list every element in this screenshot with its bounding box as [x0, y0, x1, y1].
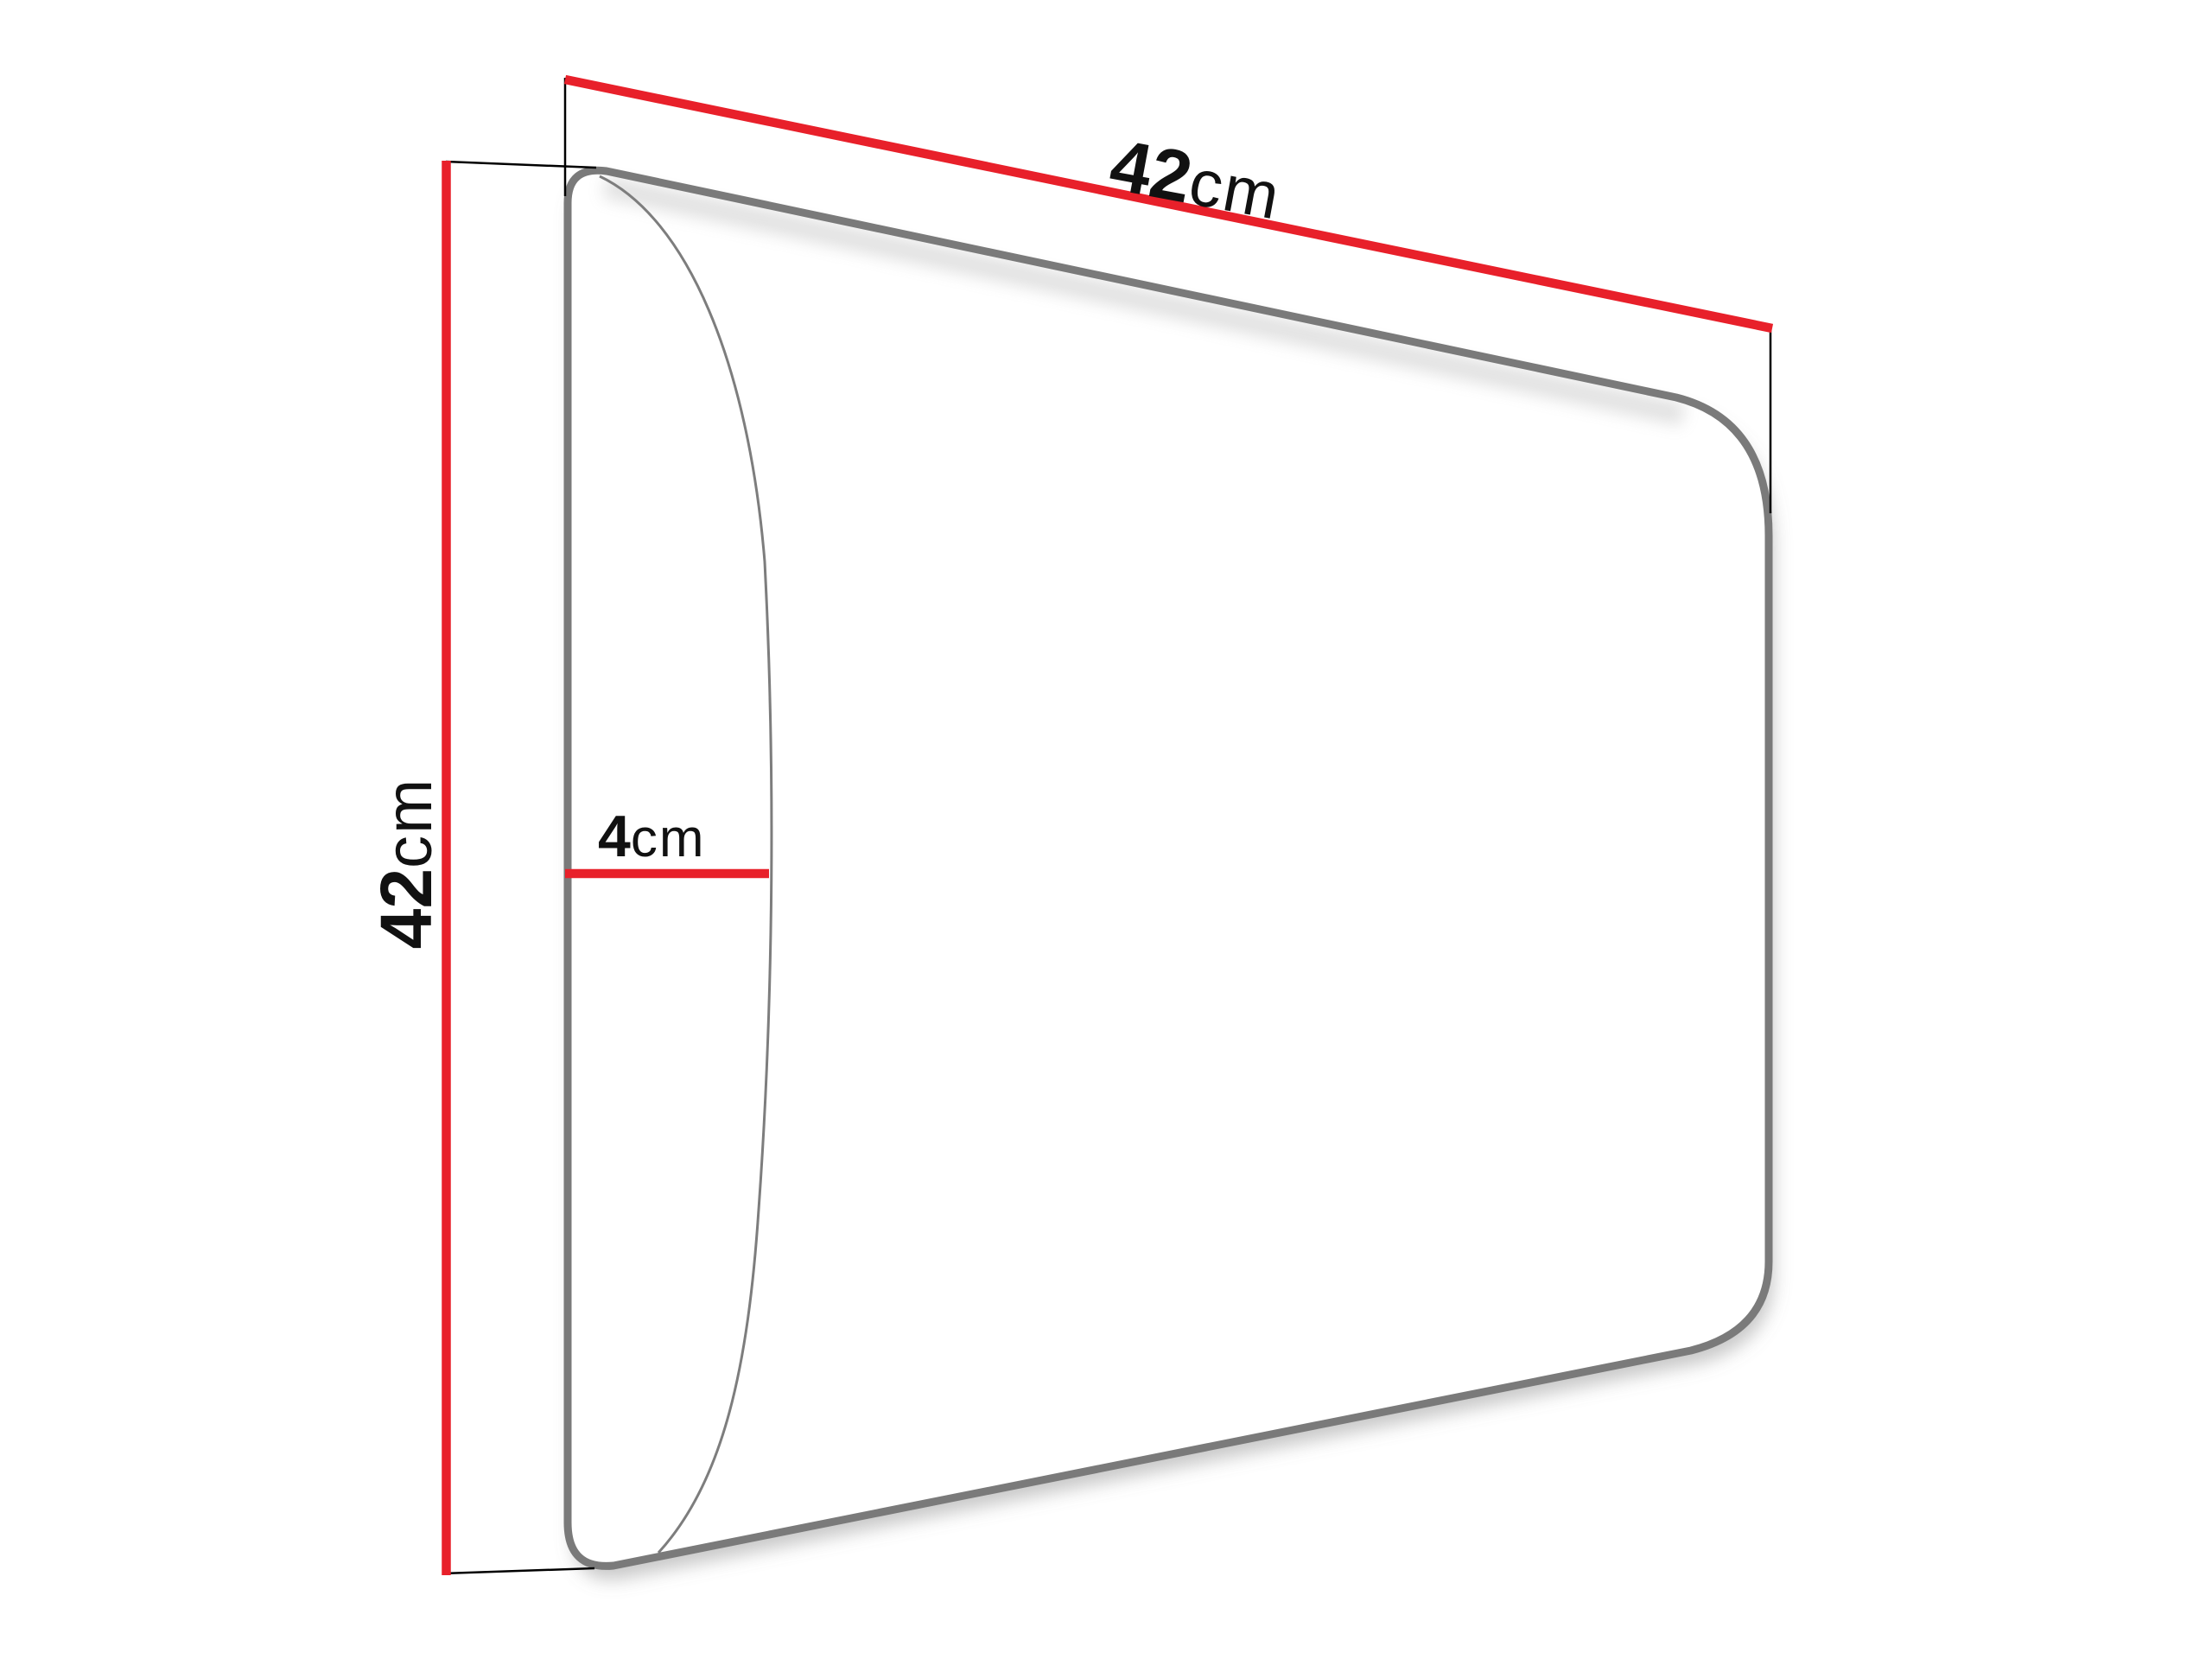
height-unit: cm — [372, 778, 446, 868]
depth-dimension-label: 4cm — [598, 807, 705, 866]
dimension-diagram: 42cm 42cm 4cm — [0, 0, 2212, 1659]
extension-line-bottom-horizontal — [443, 1568, 594, 1573]
panel-drawing — [0, 0, 2212, 1659]
extension-line-top-left-horizontal — [446, 162, 596, 168]
depth-unit: cm — [631, 809, 706, 868]
depth-value: 4 — [598, 804, 631, 869]
height-value: 42 — [365, 868, 447, 949]
height-dimension-label: 42cm — [370, 778, 442, 950]
width-value: 42 — [1104, 124, 1198, 218]
